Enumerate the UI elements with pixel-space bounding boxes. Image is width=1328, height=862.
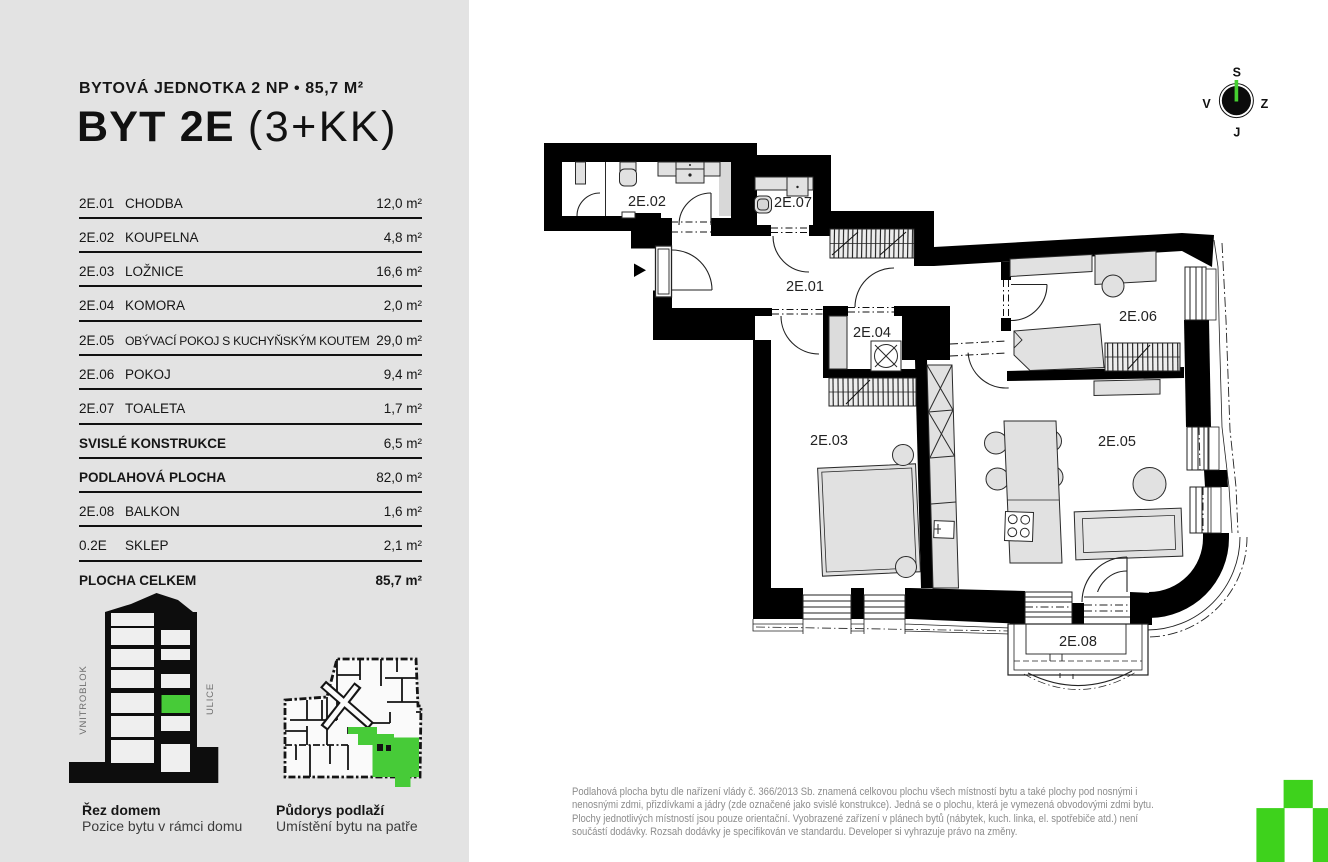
svg-text:2E.02: 2E.02 <box>628 194 666 210</box>
svg-text:Z: Z <box>1261 97 1269 111</box>
svg-text:S: S <box>1233 66 1241 80</box>
svg-text:ULICE: ULICE <box>205 683 216 715</box>
svg-text:2E.03: 2E.03 <box>810 433 848 449</box>
svg-text:2E.04: 2E.04 <box>853 325 891 341</box>
svg-text:2E.07: 2E.07 <box>774 195 812 211</box>
svg-text:2E.05: 2E.05 <box>1098 434 1136 450</box>
svg-text:2E.01: 2E.01 <box>786 279 824 295</box>
svg-text:2E.08: 2E.08 <box>1059 634 1097 650</box>
svg-text:J: J <box>1233 126 1240 140</box>
svg-text:VNITROBLOK: VNITROBLOK <box>78 665 89 734</box>
svg-text:V: V <box>1202 97 1211 111</box>
svg-text:2E.06: 2E.06 <box>1119 309 1157 325</box>
